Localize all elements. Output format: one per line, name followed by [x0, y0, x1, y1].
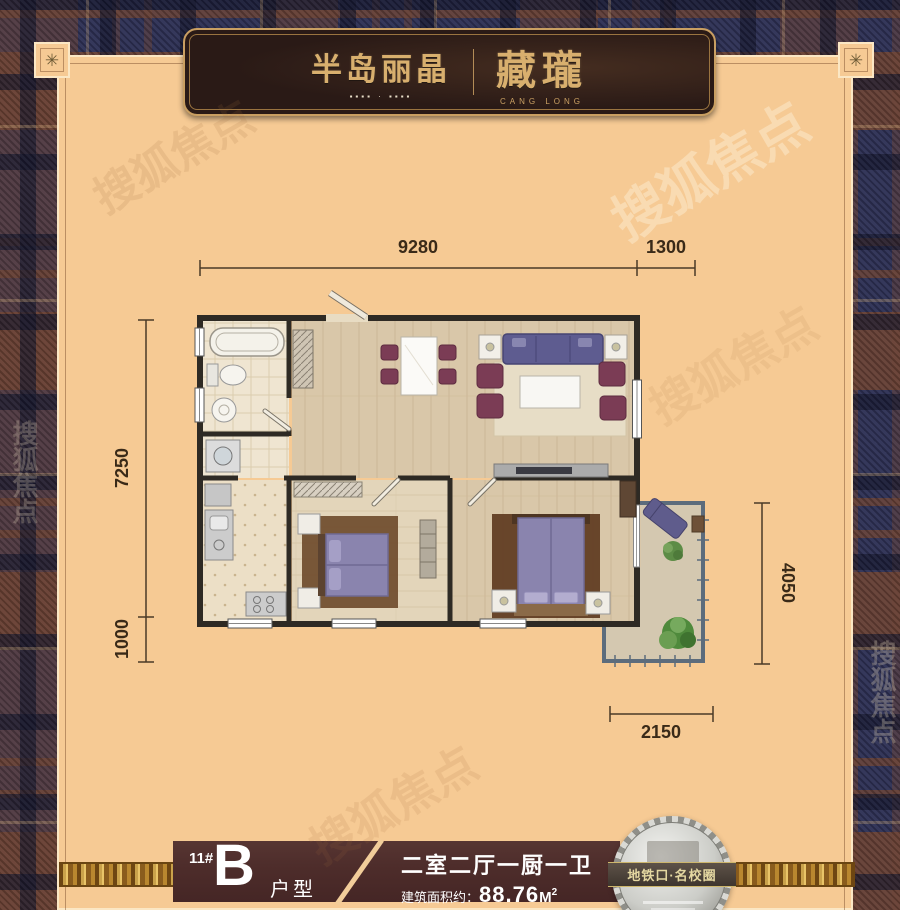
area-superscript: 2	[552, 887, 558, 898]
corner-ornament-right: ✳	[838, 42, 874, 78]
badge-banner: 地铁口·名校圈	[608, 862, 736, 887]
unit-letter: B	[213, 835, 255, 896]
star-icon: ✳	[45, 52, 59, 69]
header-plaque: 半岛丽晶 ▪▪▪▪ · ▪▪▪▪ 藏瓏 CANG LONG	[183, 28, 716, 116]
project-name-pinyin: CANG LONG	[500, 97, 584, 106]
developer-logo-text: 半岛丽晶	[311, 44, 451, 89]
unit-type-label: 户型	[270, 873, 316, 902]
project-logo: 藏瓏 CANG LONG	[496, 38, 588, 106]
watermark: 搜狐焦点	[6, 420, 43, 524]
watermark: 搜狐焦点	[864, 640, 900, 744]
unit-info-bar: 11# B 户型 二室二厅一厨一卫 建筑面积约：88.76M2	[173, 841, 620, 902]
corner-ornament-left: ✳	[34, 42, 70, 78]
unit-summary: 二室二厅一厨一卫 建筑面积约：88.76M2	[401, 848, 601, 908]
divider-slash	[335, 839, 384, 906]
star-icon: ✳	[849, 52, 863, 69]
selling-point-badge: 地铁口·名校圈	[612, 816, 732, 910]
layout-text: 二室二厅一厨一卫	[401, 848, 601, 880]
area-value: 88.76	[479, 882, 539, 908]
building-number: 11#	[189, 850, 213, 867]
project-name: 藏瓏	[496, 38, 588, 96]
floorplan-advert: ✳ ✳	[0, 0, 900, 910]
area-text: 建筑面积约：88.76M2	[401, 882, 601, 908]
badge-text: 地铁口·名校圈	[627, 865, 716, 884]
plaque-divider	[473, 49, 474, 95]
content-panel	[57, 55, 853, 910]
developer-logo: 半岛丽晶 ▪▪▪▪ · ▪▪▪▪	[311, 44, 451, 101]
area-label: 建筑面积约：	[401, 887, 479, 906]
badge-small-text-line	[643, 901, 703, 904]
area-unit: M	[539, 889, 552, 906]
developer-logo-subtext: ▪▪▪▪ · ▪▪▪▪	[350, 92, 413, 101]
